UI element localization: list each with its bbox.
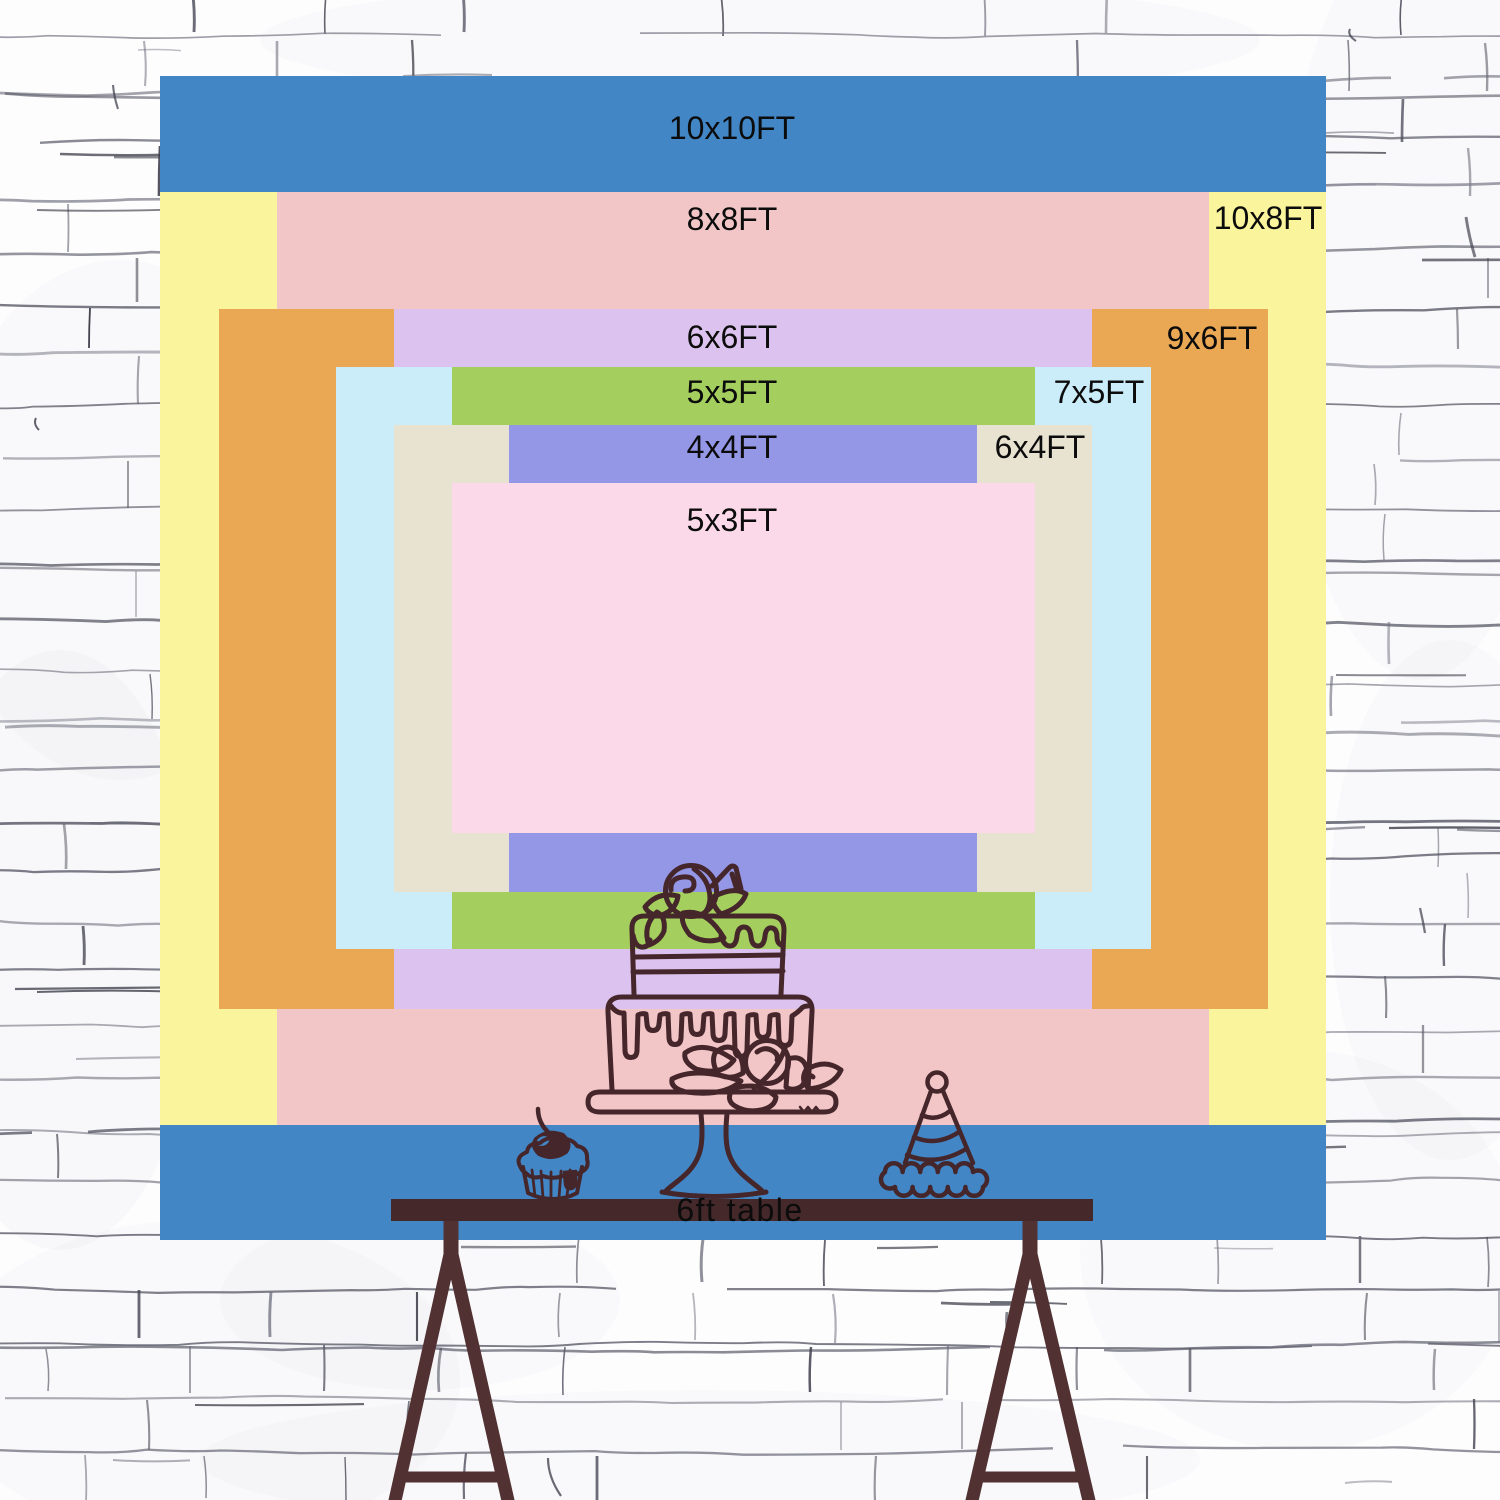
svg-text:4x4FT: 4x4FT (687, 429, 778, 465)
svg-text:9x6FT: 9x6FT (1167, 320, 1258, 356)
svg-text:5x5FT: 5x5FT (687, 374, 778, 410)
svg-text:5x3FT: 5x3FT (687, 502, 778, 538)
svg-text:7x5FT: 7x5FT (1054, 374, 1145, 410)
svg-text:8x8FT: 8x8FT (687, 201, 778, 237)
svg-text:6ft table: 6ft table (676, 1192, 803, 1228)
svg-text:10x10FT: 10x10FT (669, 110, 795, 146)
svg-text:10x8FT: 10x8FT (1214, 200, 1322, 236)
svg-text:6x4FT: 6x4FT (995, 429, 1086, 465)
svg-text:6x6FT: 6x6FT (687, 319, 778, 355)
